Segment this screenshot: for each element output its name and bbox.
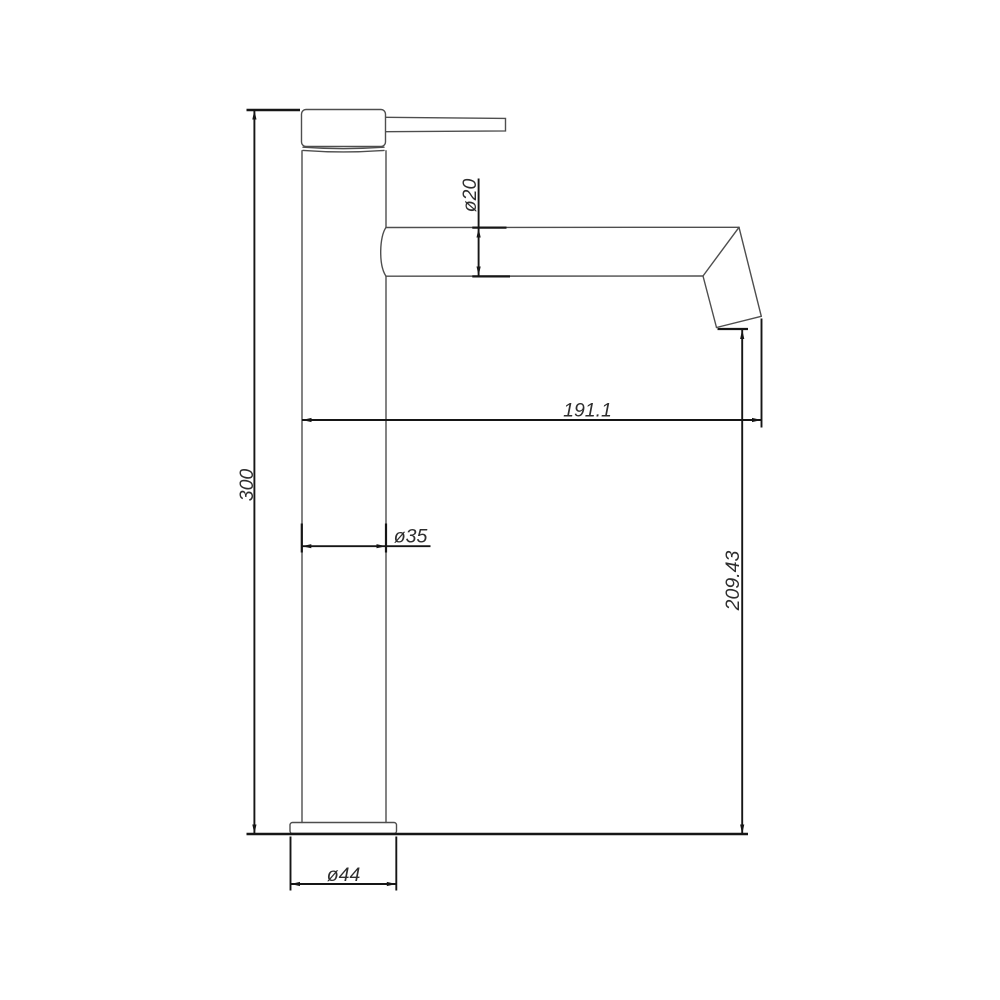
svg-text:191.1: 191.1 — [563, 400, 612, 422]
svg-text:209.43: 209.43 — [722, 551, 744, 612]
svg-text:ø44: ø44 — [327, 864, 361, 886]
svg-text:ø35: ø35 — [394, 526, 428, 548]
svg-text:300: 300 — [236, 469, 258, 502]
svg-text:ø20: ø20 — [459, 179, 481, 213]
